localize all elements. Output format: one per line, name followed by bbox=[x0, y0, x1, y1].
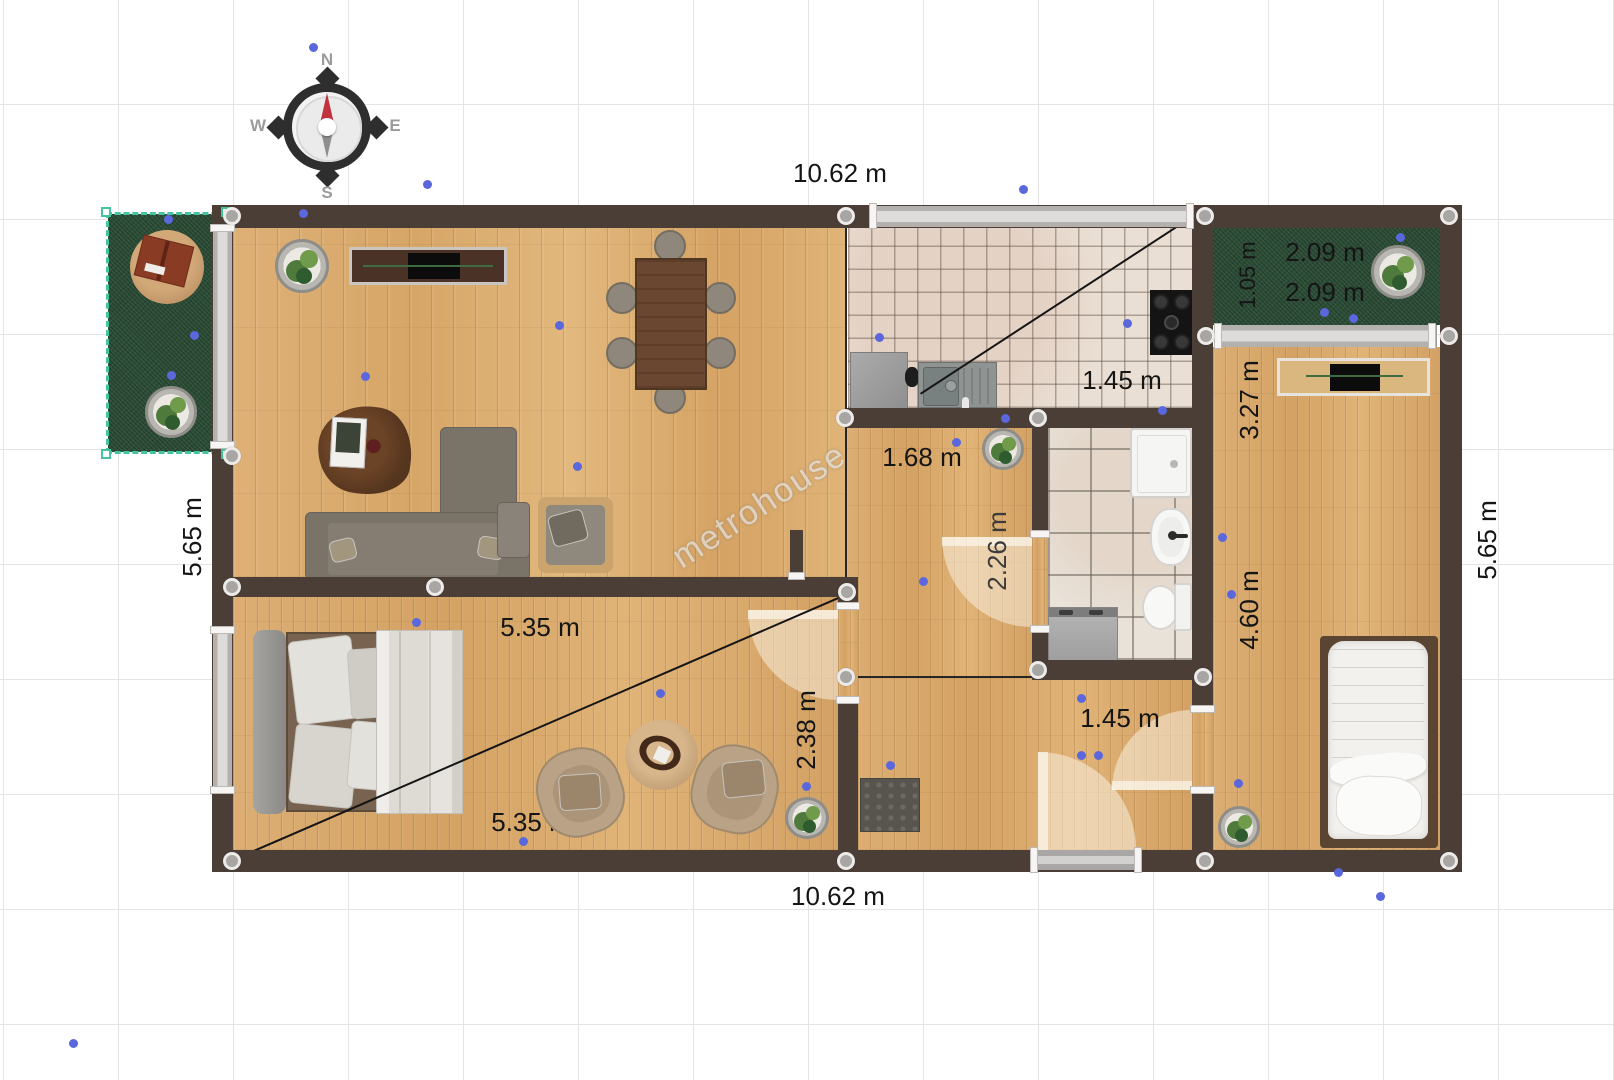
door-jamb bbox=[1190, 705, 1215, 713]
control-point[interactable] bbox=[223, 447, 241, 465]
marker-dot[interactable] bbox=[190, 331, 199, 340]
burner bbox=[1174, 334, 1190, 350]
dim-kitchen-width: 1.45 m bbox=[1082, 367, 1162, 393]
control-point[interactable] bbox=[836, 409, 854, 427]
burner bbox=[1153, 294, 1169, 310]
wall-right[interactable] bbox=[1440, 205, 1462, 872]
dim-terrace-depth: 1.05 m bbox=[1237, 241, 1259, 308]
window-jamb bbox=[1186, 203, 1194, 229]
dim-terrace-width-a: 2.09 m bbox=[1285, 239, 1365, 265]
partition-line-entry[interactable] bbox=[858, 676, 1032, 678]
window-jamb bbox=[869, 203, 877, 229]
cup bbox=[366, 438, 382, 454]
potted-plant[interactable] bbox=[275, 239, 329, 293]
tv-screen bbox=[1330, 364, 1380, 391]
armchair-wood-frame[interactable] bbox=[538, 497, 613, 573]
stove[interactable] bbox=[1150, 290, 1194, 355]
entry-door[interactable] bbox=[1038, 850, 1136, 870]
marker-dot[interactable] bbox=[1019, 185, 1028, 194]
door-jamb bbox=[788, 572, 805, 580]
plant-leaves bbox=[1397, 256, 1414, 273]
marker-dot[interactable] bbox=[802, 782, 811, 791]
tv-shelf bbox=[1306, 375, 1403, 377]
marker-dot[interactable] bbox=[952, 438, 961, 447]
control-point[interactable] bbox=[837, 852, 855, 870]
marker-dot[interactable] bbox=[299, 209, 308, 218]
control-point[interactable] bbox=[837, 207, 855, 225]
wall-mid-horizontal[interactable] bbox=[212, 577, 845, 597]
marker-dot[interactable] bbox=[1094, 751, 1103, 760]
plant-leaves bbox=[1238, 815, 1252, 829]
tv-shelf bbox=[363, 265, 493, 267]
dining-chair[interactable] bbox=[704, 337, 736, 369]
floor-plan-canvas: N E S W bbox=[0, 0, 1614, 1080]
shower-tray[interactable] bbox=[1130, 428, 1192, 498]
door-gap-floor bbox=[1032, 537, 1048, 627]
marker-dot[interactable] bbox=[656, 689, 665, 698]
burner bbox=[1174, 294, 1190, 310]
window-bedroom1-left[interactable] bbox=[213, 630, 232, 792]
double-bed[interactable] bbox=[253, 628, 463, 816]
toilet-tank bbox=[1174, 583, 1192, 631]
tv-sideboard[interactable] bbox=[1277, 358, 1430, 396]
marker-dot[interactable] bbox=[423, 180, 432, 189]
door-jamb bbox=[1030, 625, 1050, 633]
marker-dot[interactable] bbox=[1234, 779, 1243, 788]
plant-leaves bbox=[1235, 829, 1248, 842]
bed-duvet-fold bbox=[429, 630, 431, 814]
sink-faucet-dot bbox=[1168, 531, 1177, 540]
grid-line bbox=[3, 0, 4, 1080]
washing-machine[interactable] bbox=[1048, 607, 1118, 665]
terrace-left-selection[interactable] bbox=[106, 212, 226, 454]
marker-dot[interactable] bbox=[1123, 319, 1132, 328]
dining-chair[interactable] bbox=[606, 282, 638, 314]
marker-dot[interactable] bbox=[1376, 892, 1385, 901]
bathroom-sink[interactable] bbox=[1150, 508, 1192, 566]
kitchen-cabinet[interactable] bbox=[850, 352, 908, 410]
door-jamb bbox=[1134, 847, 1142, 873]
plant-leaves bbox=[1392, 275, 1407, 290]
tv-sideboard[interactable] bbox=[349, 247, 507, 285]
potted-plant[interactable] bbox=[1371, 245, 1425, 299]
marker-dot[interactable] bbox=[309, 43, 318, 52]
shower-inner bbox=[1137, 435, 1187, 493]
window-jamb bbox=[210, 786, 235, 794]
dining-chair[interactable] bbox=[704, 282, 736, 314]
marker-dot[interactable] bbox=[1227, 590, 1236, 599]
door-gap-floor bbox=[838, 610, 858, 700]
marker-dot[interactable] bbox=[164, 215, 173, 224]
dim-bedroom2-lower: 4.60 m bbox=[1236, 570, 1262, 650]
marker-dot[interactable] bbox=[1218, 533, 1227, 542]
control-point[interactable] bbox=[1029, 661, 1047, 679]
selection-handle[interactable] bbox=[101, 449, 111, 459]
control-point[interactable] bbox=[1196, 207, 1214, 225]
compass-label-east: E bbox=[389, 116, 400, 136]
control-point[interactable] bbox=[223, 207, 241, 225]
round-side-table[interactable] bbox=[625, 720, 698, 790]
door-leaf-bedroom2[interactable] bbox=[1112, 781, 1192, 790]
marker-dot[interactable] bbox=[69, 1039, 78, 1048]
control-point[interactable] bbox=[1196, 852, 1214, 870]
marker-dot[interactable] bbox=[875, 333, 884, 342]
marker-dot[interactable] bbox=[1001, 414, 1010, 423]
plant-leaves bbox=[1002, 437, 1016, 451]
plant-leaves bbox=[806, 806, 820, 820]
dim-top-width: 10.62 m bbox=[793, 160, 887, 186]
grid-line bbox=[0, 1024, 1614, 1025]
partition-line-kitchen[interactable] bbox=[845, 228, 847, 577]
window-jamb bbox=[210, 626, 235, 634]
control-point[interactable] bbox=[1197, 327, 1215, 345]
marker-dot[interactable] bbox=[1077, 751, 1086, 760]
marker-dot[interactable] bbox=[1349, 314, 1358, 323]
washer-knob bbox=[1059, 610, 1073, 615]
wall-bathroom-bottom[interactable] bbox=[1032, 660, 1192, 680]
dim-bedroom2-upper: 3.27 m bbox=[1236, 360, 1262, 440]
kettle[interactable] bbox=[905, 367, 919, 387]
window-kitchen[interactable] bbox=[875, 206, 1194, 227]
armchair-pillow bbox=[721, 759, 767, 799]
marker-dot[interactable] bbox=[412, 618, 421, 627]
sofa-corner[interactable] bbox=[497, 502, 530, 558]
plant-leaves bbox=[999, 451, 1012, 464]
dim-terrace-width-b: 2.09 m bbox=[1285, 279, 1365, 305]
potted-plant[interactable] bbox=[982, 428, 1024, 470]
plant-leaves bbox=[300, 250, 318, 268]
dining-table[interactable] bbox=[635, 258, 707, 390]
toilet[interactable] bbox=[1142, 583, 1194, 633]
shower-drain bbox=[1170, 460, 1178, 468]
dim-hall-width: 1.68 m bbox=[882, 444, 962, 470]
marker-dot[interactable] bbox=[1396, 233, 1405, 242]
marker-dot[interactable] bbox=[555, 321, 564, 330]
control-point[interactable] bbox=[838, 583, 856, 601]
armchair-pillow bbox=[558, 773, 602, 812]
dim-entry-width: 1.45 m bbox=[1080, 705, 1160, 731]
bed-headboard bbox=[253, 630, 286, 814]
magazine bbox=[330, 417, 368, 469]
bed-duvet bbox=[376, 630, 463, 814]
dim-bedroom1-depth: 2.38 m bbox=[793, 690, 819, 770]
control-point[interactable] bbox=[1440, 207, 1458, 225]
window-jamb bbox=[1214, 323, 1222, 349]
potted-plant[interactable] bbox=[785, 797, 829, 839]
control-point[interactable] bbox=[223, 578, 241, 596]
control-point[interactable] bbox=[426, 578, 444, 596]
selection-handle[interactable] bbox=[101, 207, 111, 217]
dim-left-height: 5.65 m bbox=[179, 497, 205, 577]
wall-stub[interactable] bbox=[790, 530, 803, 577]
window-terrace-right[interactable] bbox=[1218, 325, 1437, 347]
door-jamb bbox=[836, 602, 860, 610]
potted-plant[interactable] bbox=[1218, 806, 1260, 848]
bed-pillow bbox=[1335, 775, 1423, 838]
plant-leaves bbox=[803, 820, 816, 833]
control-point[interactable] bbox=[223, 852, 241, 870]
dim-bedroom1-width: 5.35 m bbox=[500, 614, 580, 640]
control-point[interactable] bbox=[837, 668, 855, 686]
plant-leaves bbox=[296, 268, 312, 284]
marker-dot[interactable] bbox=[573, 462, 582, 471]
wall-bottom-divider-lower[interactable] bbox=[838, 700, 858, 872]
grid-line bbox=[0, 104, 1614, 105]
compass-label-west: W bbox=[250, 116, 266, 136]
compass-pin bbox=[318, 118, 336, 136]
control-point[interactable] bbox=[1440, 327, 1458, 345]
wall-bedroom2-upper[interactable] bbox=[1192, 205, 1213, 712]
dim-bathroom-door: 2.26 m bbox=[984, 511, 1010, 591]
marker-dot[interactable] bbox=[519, 837, 528, 846]
window-jamb bbox=[1428, 323, 1436, 349]
marker-dot[interactable] bbox=[167, 371, 176, 380]
marker-dot[interactable] bbox=[1077, 694, 1086, 703]
sink-drain bbox=[945, 380, 957, 392]
door-jamb bbox=[1030, 530, 1050, 538]
bed-duvet-lines bbox=[1332, 648, 1424, 758]
control-point[interactable] bbox=[1029, 409, 1047, 427]
marker-dot[interactable] bbox=[361, 372, 370, 381]
grid-line bbox=[118, 0, 119, 1080]
magazine-cover bbox=[335, 422, 361, 453]
control-point[interactable] bbox=[1194, 668, 1212, 686]
door-jamb bbox=[1030, 847, 1038, 873]
marker-dot[interactable] bbox=[886, 761, 895, 770]
door-jamb bbox=[836, 696, 860, 704]
control-point[interactable] bbox=[1440, 852, 1458, 870]
dining-chair[interactable] bbox=[606, 337, 638, 369]
single-bed[interactable] bbox=[1320, 636, 1438, 848]
burner bbox=[1153, 334, 1169, 350]
dim-bottom-width: 10.62 m bbox=[791, 883, 885, 909]
dim-right-height: 5.65 m bbox=[1474, 500, 1500, 580]
washer-knob bbox=[1089, 610, 1103, 615]
compass-label-north: N bbox=[321, 50, 333, 70]
marker-dot[interactable] bbox=[1320, 308, 1329, 317]
door-jamb bbox=[1190, 786, 1215, 794]
compass-label-south: S bbox=[321, 183, 332, 203]
burner-center bbox=[1164, 315, 1179, 330]
window-jamb bbox=[210, 224, 235, 232]
door-gap-floor bbox=[1192, 712, 1213, 790]
marker-dot[interactable] bbox=[1334, 868, 1343, 877]
window-living-left[interactable] bbox=[213, 228, 232, 447]
marker-dot[interactable] bbox=[919, 577, 928, 586]
doormat[interactable] bbox=[860, 778, 920, 832]
marker-dot[interactable] bbox=[1158, 406, 1167, 415]
door-leaf-entry[interactable] bbox=[1038, 752, 1048, 850]
